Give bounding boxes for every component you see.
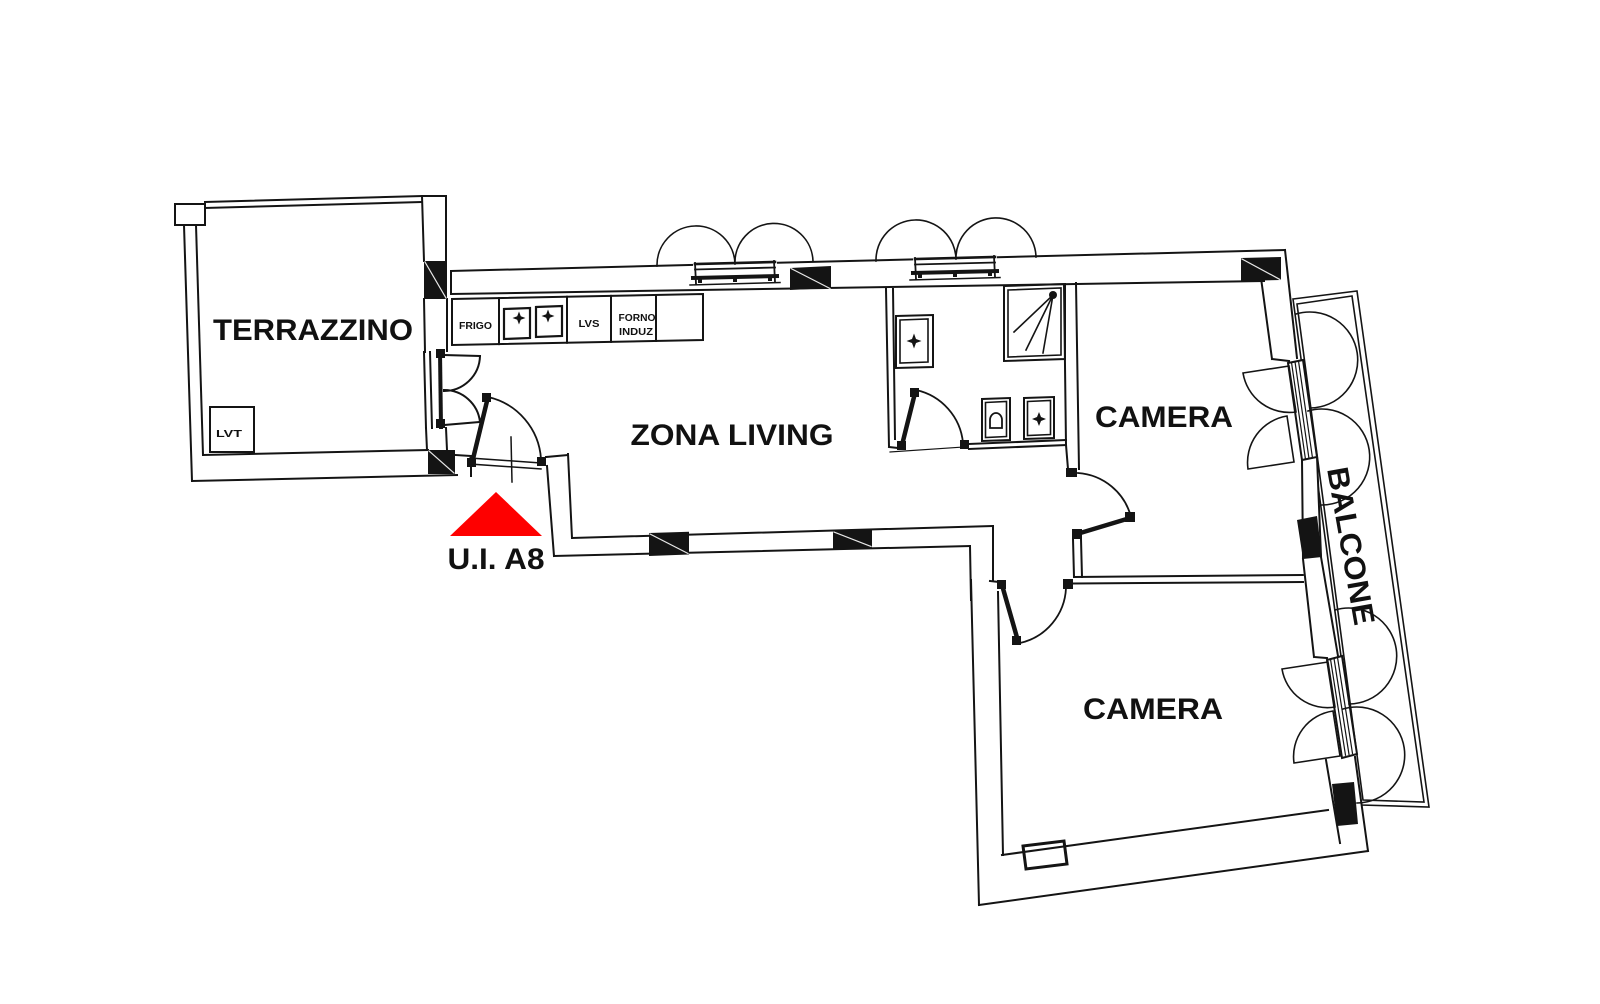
svg-text:INDUZ: INDUZ: [619, 326, 654, 338]
svg-text:ZONA LIVING: ZONA LIVING: [631, 419, 834, 452]
svg-text:TERRAZZINO: TERRAZZINO: [213, 314, 413, 347]
svg-text:LVS: LVS: [579, 318, 600, 330]
svg-text:FORNO: FORNO: [619, 312, 656, 324]
svg-text:LVT: LVT: [216, 428, 243, 440]
svg-text:CAMERA: CAMERA: [1095, 401, 1233, 434]
svg-text:FRIGO: FRIGO: [459, 320, 492, 332]
svg-text:U.I. A8: U.I. A8: [448, 543, 545, 576]
svg-text:CAMERA: CAMERA: [1083, 693, 1223, 726]
